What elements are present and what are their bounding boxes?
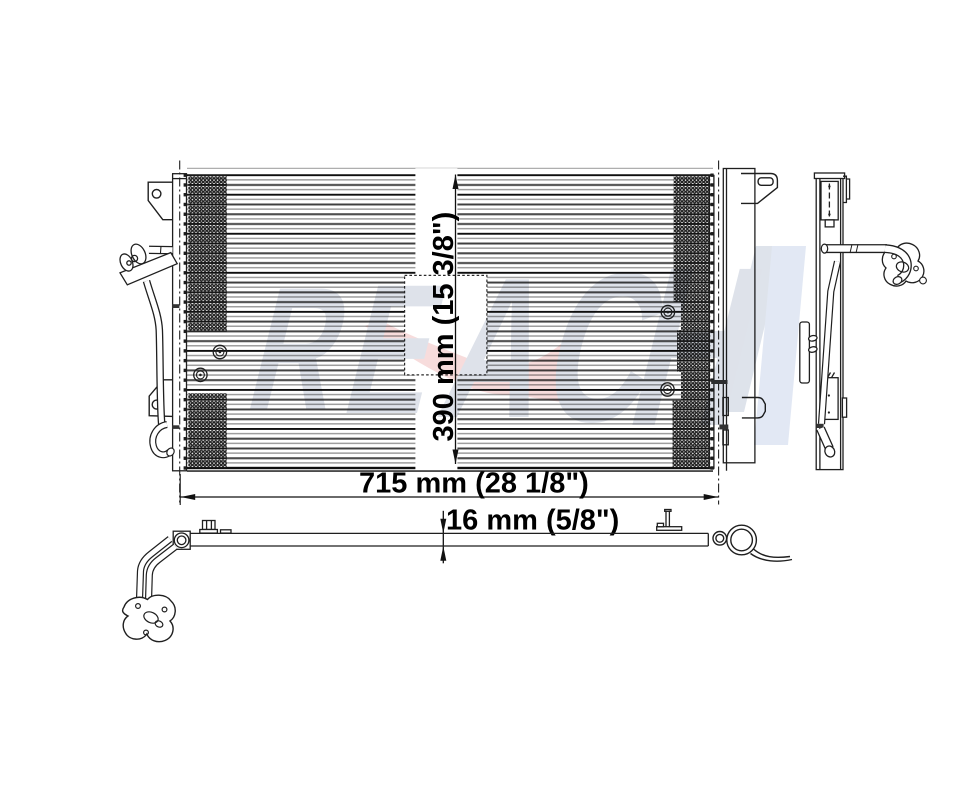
svg-text:715 mm (28 1/8"): 715 mm (28 1/8") xyxy=(359,468,589,500)
svg-text:16 mm (5/8"): 16 mm (5/8") xyxy=(446,505,619,537)
svg-text:390 mm (15 3/8"): 390 mm (15 3/8") xyxy=(428,212,460,442)
